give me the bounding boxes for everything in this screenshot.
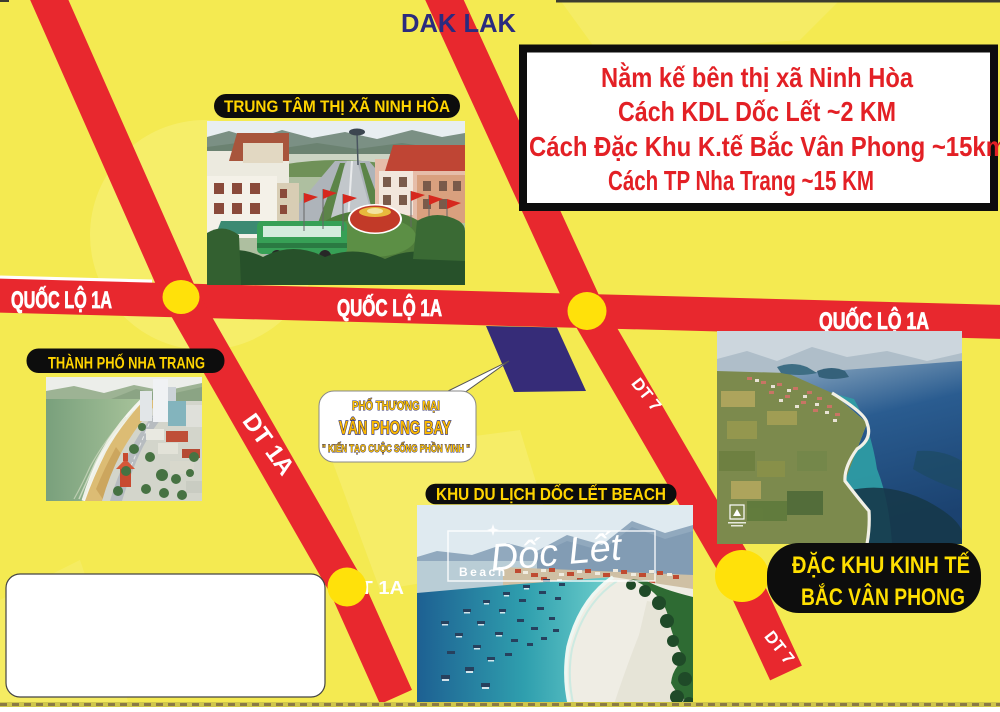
svg-text:THÀNH PHỐ NHA TRANG: THÀNH PHỐ NHA TRANG <box>48 353 205 373</box>
svg-text:DAK LAK: DAK LAK <box>401 8 516 38</box>
svg-text:Beach: Beach <box>459 565 508 579</box>
svg-text:Cách KDL Dốc Lết ~2 KM: Cách KDL Dốc Lết ~2 KM <box>618 96 896 127</box>
svg-text:QUỐC LỘ 1A: QUỐC LỘ 1A <box>819 307 929 335</box>
svg-text:Nằm kế bên thị xã Ninh Hòa: Nằm kế bên thị xã Ninh Hòa <box>601 62 913 93</box>
svg-text:QUỐC LỘ 1A: QUỐC LỘ 1A <box>11 286 112 314</box>
svg-text:Cách TP Nha Trang ~15 KM: Cách TP Nha Trang ~15 KM <box>608 165 874 196</box>
svg-text:VÂN PHONG BAY: VÂN PHONG BAY <box>339 417 451 438</box>
svg-text:PHỐ THƯƠNG MẠI: PHỐ THƯƠNG MẠI <box>352 398 440 413</box>
svg-text:BẮC VÂN PHONG: BẮC VÂN PHONG <box>801 583 965 611</box>
svg-text:QUỐC LỘ 1A: QUỐC LỘ 1A <box>337 294 442 322</box>
svg-text:KHU DU LỊCH DỐC LẾT BEACH: KHU DU LỊCH DỐC LẾT BEACH <box>436 483 666 504</box>
svg-text:Cách Đặc Khu K.tế Bắc Vân Phon: Cách Đặc Khu K.tế Bắc Vân Phong ~15km <box>529 131 1000 162</box>
svg-text:TRUNG TÂM THỊ XÃ NINH HÒA: TRUNG TÂM THỊ XÃ NINH HÒA <box>224 96 450 116</box>
svg-text:ĐẶC KHU KINH TẾ: ĐẶC KHU KINH TẾ <box>792 551 970 579</box>
svg-text:" KIẾN TẠO CUỘC SỐNG PHỒN VINH: " KIẾN TẠO CUỘC SỐNG PHỒN VINH " <box>322 441 470 455</box>
